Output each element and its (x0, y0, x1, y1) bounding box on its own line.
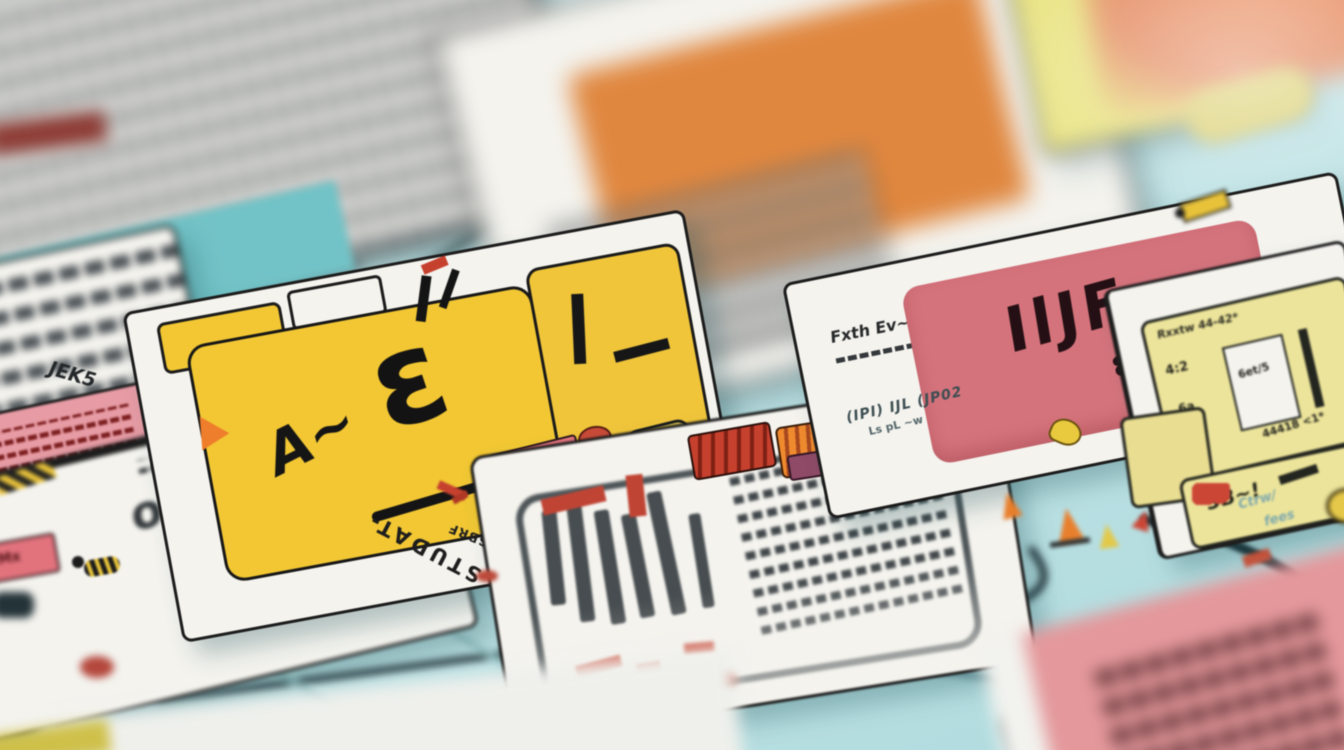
sticky-line1: Rxxtw 44-42* (1157, 311, 1239, 341)
yellow-note-glyph-a: A~ (261, 388, 361, 486)
sticky-notch (1222, 334, 1302, 432)
sticky-line2: 4:2 (1164, 360, 1190, 378)
yellow-note-glyph-e: ε (354, 308, 462, 452)
dark-blotch-rows (1085, 596, 1344, 750)
ink-stroke (613, 338, 670, 363)
ink-stroke (571, 294, 586, 364)
yellow-cone (1096, 523, 1119, 550)
bee-head (72, 556, 84, 568)
red-dot (476, 570, 498, 582)
map-illustration-scene: obocR JEK5 A~ ε STUDAT- CJBAANLES NSBRF … (0, 0, 1344, 750)
red-dot (80, 656, 114, 678)
ink-stroke (1278, 464, 1319, 485)
ink-stroke (421, 255, 449, 274)
road-tag-left-text: Mx (0, 549, 22, 567)
red-flower-marker (1192, 483, 1230, 505)
ink-stroke (439, 269, 460, 309)
ink-stroke (1298, 328, 1325, 408)
dark-blob (0, 592, 34, 618)
ink-stroke (416, 275, 432, 322)
